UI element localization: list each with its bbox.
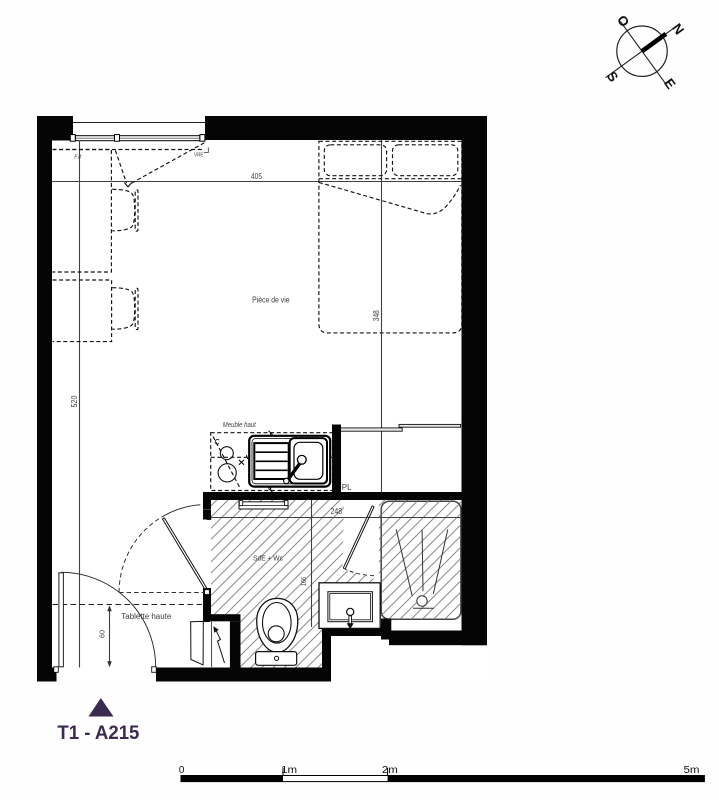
svg-text:1m: 1m: [281, 765, 297, 776]
svg-text:SdE + Wc: SdE + Wc: [253, 554, 283, 563]
svg-text:2m: 2m: [382, 765, 398, 776]
svg-text:348: 348: [372, 310, 381, 321]
svg-text:166: 166: [299, 577, 308, 586]
svg-text:PL: PL: [342, 483, 352, 492]
svg-text:5m: 5m: [684, 765, 700, 776]
svg-text:0: 0: [179, 765, 185, 776]
svg-text:60: 60: [98, 630, 107, 638]
svg-text:Tablette haute: Tablette haute: [121, 612, 172, 621]
svg-text:F.If: F.If: [74, 155, 81, 161]
svg-text:VRE: VRE: [194, 152, 204, 158]
svg-text:405: 405: [251, 172, 262, 181]
svg-text:T1 - A215: T1 - A215: [57, 722, 139, 744]
svg-text:Pièce de vie: Pièce de vie: [252, 295, 290, 304]
svg-text:248: 248: [331, 507, 343, 516]
svg-text:Meuble haut: Meuble haut: [223, 420, 257, 429]
svg-text:520: 520: [70, 395, 79, 408]
